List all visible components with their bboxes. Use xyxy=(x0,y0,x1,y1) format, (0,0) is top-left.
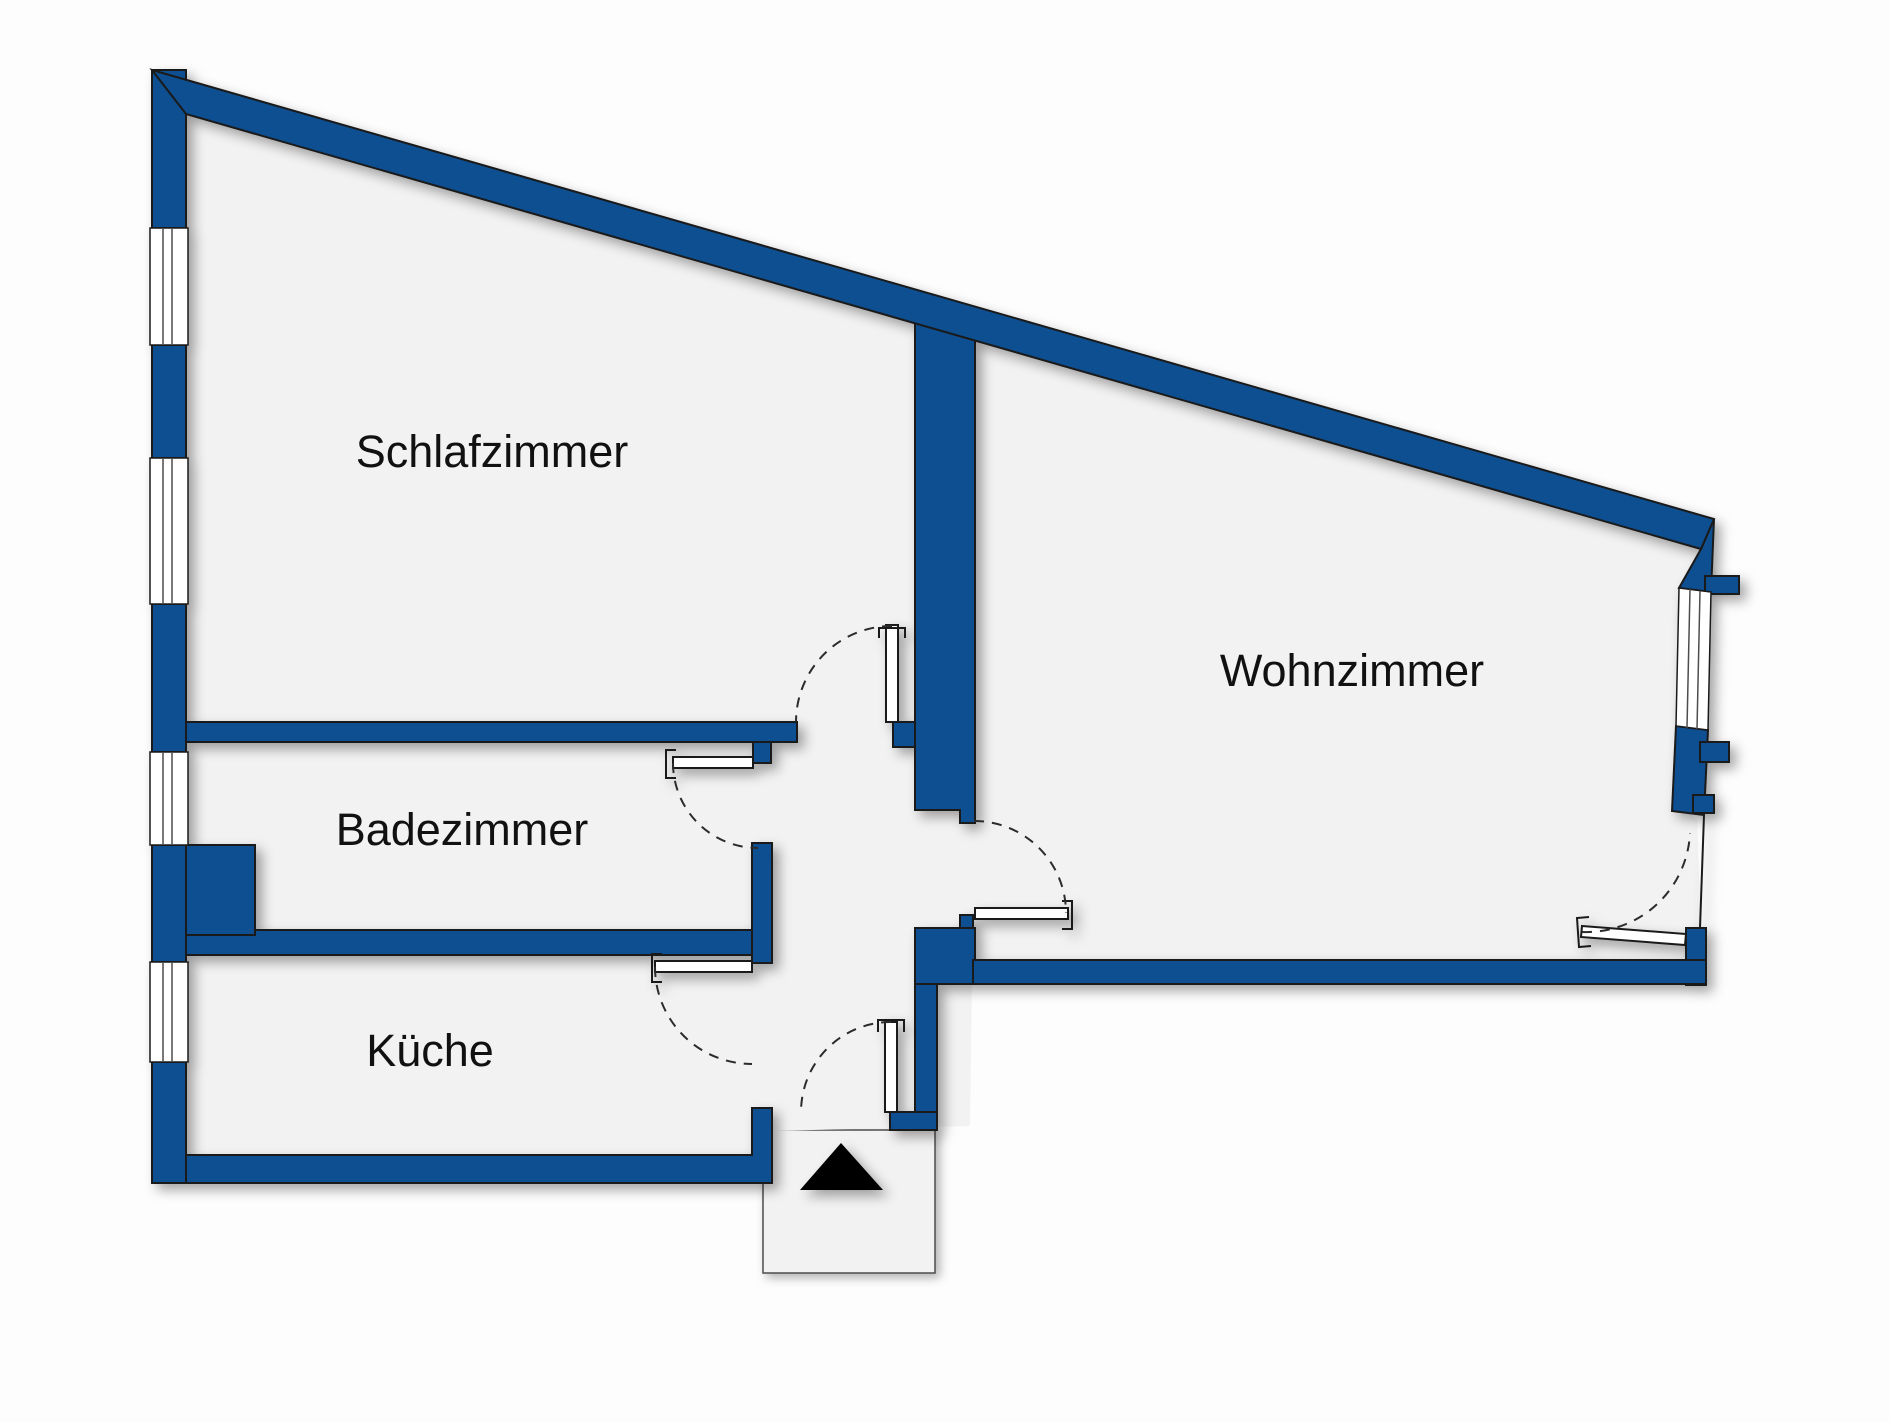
room-label-wohnzimmer: Wohnzimmer xyxy=(1220,645,1484,696)
wall-entrance-return xyxy=(890,1112,937,1130)
room-label-schlafzimmer: Schlafzimmer xyxy=(356,426,629,477)
door-entrance-leaf xyxy=(885,1022,897,1112)
wall-jamb-badezimmer-door xyxy=(753,742,771,763)
wall-badezimmer-east xyxy=(752,843,772,963)
room-label-kueche: Küche xyxy=(366,1025,494,1076)
floor-plan-canvas: Schlafzimmer Badezimmer Küche Wohnzimmer xyxy=(0,0,1889,1422)
wall-jamb-schlafzimmer-door xyxy=(893,722,915,747)
floor-plan: Schlafzimmer Badezimmer Küche Wohnzimmer xyxy=(0,0,1889,1422)
room-label-badezimmer: Badezimmer xyxy=(336,804,589,855)
wall-right-step xyxy=(1693,795,1714,813)
door-kueche-leaf xyxy=(655,961,752,972)
entrance-vestibule xyxy=(763,1130,935,1273)
door-schlafzimmer-leaf xyxy=(886,625,898,722)
balcony-door-threshold xyxy=(1700,815,1704,928)
wall-central xyxy=(915,290,975,823)
wall-wohnzimmer-bottom xyxy=(973,960,1706,984)
wall-left-segment-4 xyxy=(152,1062,186,1183)
wall-wohnzimmer-corner xyxy=(915,928,975,984)
door-badezimmer-leaf xyxy=(673,757,753,768)
window-left-1 xyxy=(150,228,188,345)
wall-divider-schlafzimmer-badezimmer xyxy=(152,722,797,742)
window-right-wohnzimmer xyxy=(1676,588,1711,730)
window-left-3 xyxy=(150,752,188,845)
wall-left-segment-2 xyxy=(152,345,186,458)
wall-left-pillar-lower xyxy=(152,845,186,962)
door-wohnzimmer-leaf xyxy=(975,908,1068,919)
wall-window-sill-lower xyxy=(1700,742,1729,762)
wall-left-segment-3 xyxy=(152,604,186,752)
wall-hall-east-lower xyxy=(915,984,937,1112)
window-left-4 xyxy=(150,962,188,1062)
window-left-2 xyxy=(150,458,188,604)
